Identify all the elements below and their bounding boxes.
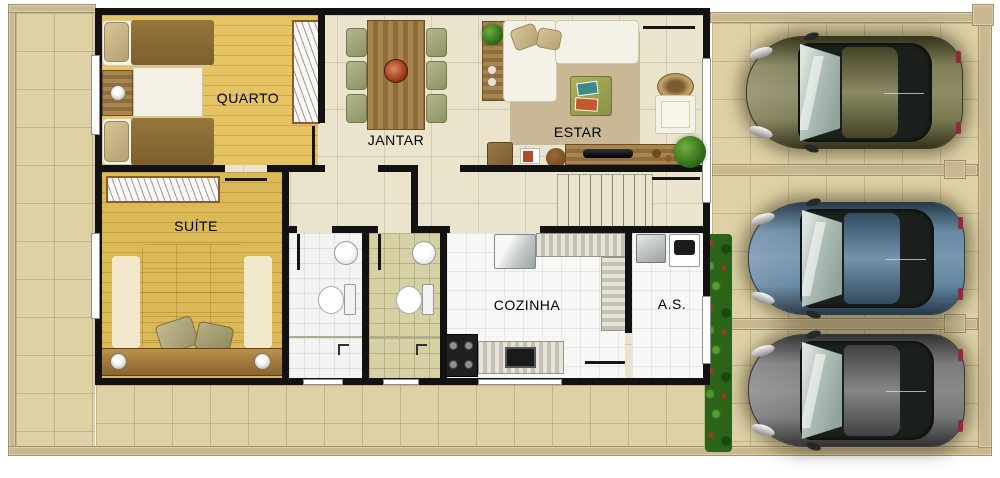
- sofa-main: [555, 20, 639, 64]
- room-label-quarto: QUARTO: [217, 90, 279, 106]
- sofa-pillow: [535, 27, 562, 51]
- parking-divider-wall-1: [712, 164, 978, 176]
- table-lamp-icon: [110, 85, 126, 101]
- window-kitchen: [478, 379, 562, 385]
- shower-divider: [289, 336, 362, 338]
- wall-kitchen-laundry: [625, 233, 632, 333]
- car-blue: [748, 202, 965, 315]
- dining-chair: [346, 94, 367, 123]
- toilet-icon: [318, 286, 344, 314]
- boundary-wall-top-right: [710, 12, 980, 23]
- floor-plan: QUARTO JANTAR ESTAR SUÍTE COZINHA A.S.: [0, 0, 1000, 478]
- wall-hall-b: [411, 165, 418, 226]
- bedroom-door-leaf: [312, 126, 315, 166]
- decor-item: [652, 149, 661, 158]
- shower-icon: [338, 344, 349, 355]
- wall-bedroom-right: [318, 15, 325, 123]
- shower-icon: [416, 344, 427, 355]
- armchair-cushion: [661, 101, 690, 128]
- room-label-estar: ESTAR: [554, 124, 602, 140]
- shower-divider: [369, 336, 440, 338]
- wall-bath2-kitchen: [440, 233, 447, 378]
- plant-pot-icon: [482, 24, 503, 45]
- magazine-cover: [523, 151, 533, 162]
- stair-handrail: [652, 177, 700, 180]
- fridge-icon: [494, 234, 536, 269]
- staircase: [557, 174, 653, 232]
- stove-icon: [444, 334, 478, 377]
- boundary-wall-bottom: [8, 446, 992, 456]
- wall-hall-bottom-d: [540, 226, 703, 233]
- bedside-mat: [112, 256, 140, 348]
- parking-divider-wall-2: [712, 318, 978, 330]
- divider-post-1: [944, 160, 966, 179]
- bedroom-wardrobe: [292, 20, 320, 124]
- boundary-wall-left: [8, 4, 16, 456]
- window-laundry: [702, 296, 711, 364]
- magazine: [520, 148, 540, 164]
- toilet-icon: [396, 286, 422, 314]
- window-suite: [91, 233, 100, 319]
- wall-suite-top-a: [95, 165, 225, 172]
- back-yard: [96, 385, 710, 446]
- taillight-icon: [958, 217, 963, 229]
- window-bath1: [303, 379, 343, 385]
- divider-post-2: [944, 314, 966, 333]
- car-roof: [844, 213, 900, 304]
- bath2-door-leaf: [378, 234, 381, 270]
- taillight-icon: [958, 288, 963, 300]
- car-windshield: [800, 44, 840, 141]
- kitchen-counter-top: [536, 233, 632, 257]
- wall-top-a: [95, 8, 640, 15]
- taillight-icon: [958, 420, 963, 432]
- sink-icon: [412, 241, 436, 265]
- dining-chair: [426, 61, 447, 90]
- car-roof: [844, 345, 900, 436]
- laundry-tank-icon: [636, 234, 666, 263]
- car-roof: [842, 47, 898, 138]
- washer-lid: [674, 240, 695, 255]
- dining-chair: [346, 28, 367, 57]
- car-gray: [748, 334, 965, 447]
- wall-suite-top-b: [267, 165, 325, 172]
- toilet-tank: [344, 284, 356, 315]
- room-label-servico: A.S.: [658, 296, 686, 312]
- wall-hall-bottom-a: [289, 226, 297, 233]
- decor-cup: [487, 77, 497, 87]
- headboard-lamp-icon: [254, 353, 271, 370]
- bath1-door-leaf: [297, 234, 300, 270]
- entrance-door-leaf: [643, 26, 695, 29]
- bed1-pillow: [104, 22, 129, 62]
- suite-wardrobe: [106, 176, 220, 203]
- dining-chair: [346, 61, 367, 90]
- toilet-tank: [422, 284, 434, 315]
- indoor-plant-icon: [674, 136, 706, 168]
- centerpiece-bowl: [384, 59, 408, 83]
- wall-bath1-bath2: [362, 233, 369, 378]
- bed2-blanket: [131, 118, 214, 165]
- decor-cup: [487, 65, 497, 75]
- room-label-suite: SUÍTE: [174, 218, 218, 234]
- car-windshield: [802, 210, 842, 307]
- taillight-icon: [958, 349, 963, 361]
- wall-hall-bottom-b: [332, 226, 378, 233]
- corner-post: [972, 4, 994, 26]
- car-windshield: [802, 342, 842, 439]
- car-olive: [746, 36, 963, 149]
- window-bath2: [383, 379, 419, 385]
- kitchen-sink-icon: [505, 347, 536, 368]
- boundary-wall-top-left: [8, 4, 96, 13]
- room-label-jantar: JANTAR: [368, 132, 424, 148]
- decor-item: [665, 155, 672, 162]
- tv-icon: [583, 149, 633, 158]
- wall-hall-c: [460, 165, 703, 172]
- taillight-icon: [956, 122, 961, 134]
- book: [575, 97, 599, 112]
- wall-hall-bottom-c: [411, 226, 450, 233]
- boundary-wall-right: [978, 12, 992, 448]
- suite-door-leaf: [225, 178, 267, 181]
- laundry-door-leaf: [585, 361, 625, 364]
- wall-suite-right: [282, 165, 289, 378]
- taillight-icon: [956, 51, 961, 63]
- window-living: [702, 58, 711, 203]
- bed2-pillow: [104, 121, 129, 162]
- dining-chair: [426, 28, 447, 57]
- window-bedroom: [91, 55, 100, 135]
- sink-icon: [334, 241, 358, 265]
- bedside-mat: [244, 256, 272, 348]
- side-yard: [16, 13, 95, 446]
- bed-sheet-fold: [133, 67, 203, 117]
- room-label-cozinha: COZINHA: [494, 297, 561, 313]
- bed1-blanket: [131, 20, 214, 65]
- headboard-lamp-icon: [110, 353, 127, 370]
- dining-chair: [426, 94, 447, 123]
